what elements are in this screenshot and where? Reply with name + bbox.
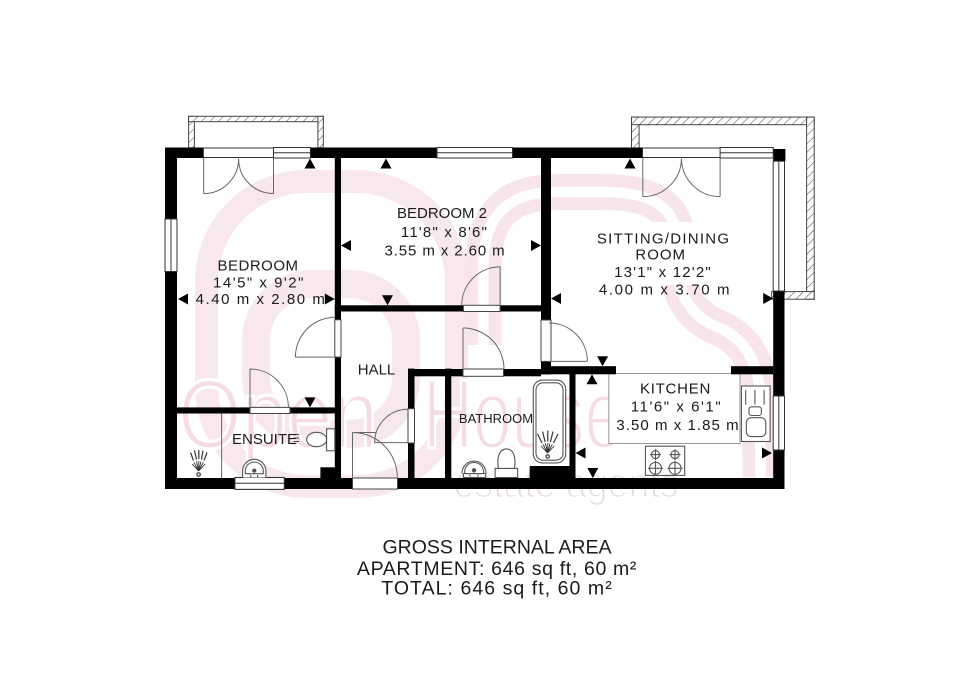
svg-text:3.50 m x 1.85 m: 3.50 m x 1.85 m (616, 417, 739, 434)
svg-text:BEDROOM 2: BEDROOM 2 (397, 205, 487, 222)
svg-text:14'5" x 9'2": 14'5" x 9'2" (213, 275, 305, 292)
svg-text:TOTAL: 646 sq ft, 60 m²: TOTAL: 646 sq ft, 60 m² (381, 578, 613, 600)
svg-text:GROSS INTERNAL AREA: GROSS INTERNAL AREA (382, 537, 611, 559)
svg-text:3.55 m x 2.60 m: 3.55 m x 2.60 m (384, 243, 505, 260)
svg-text:13'1" x 12'2": 13'1" x 12'2" (614, 264, 712, 281)
svg-text:ENSUITE: ENSUITE (232, 431, 297, 448)
svg-text:BEDROOM: BEDROOM (217, 258, 298, 275)
svg-text:4.40 m x 2.80 m: 4.40 m x 2.80 m (196, 291, 327, 308)
svg-text:APARTMENT: 646 sq ft, 60 m²: APARTMENT: 646 sq ft, 60 m² (357, 558, 637, 580)
svg-text:BATHROOM: BATHROOM (459, 411, 533, 426)
svg-text:11'8" x 8'6": 11'8" x 8'6" (401, 224, 488, 241)
svg-text:11'6" x 6'1": 11'6" x 6'1" (631, 399, 722, 416)
svg-text:HALL: HALL (358, 362, 396, 379)
svg-text:SITTING/DINING: SITTING/DINING (597, 231, 730, 248)
svg-text:Open: Open (178, 359, 378, 469)
svg-text:KITCHEN: KITCHEN (640, 381, 711, 398)
svg-text:4.00 m x 3.70 m: 4.00 m x 3.70 m (599, 282, 731, 299)
svg-text:ROOM: ROOM (635, 247, 686, 264)
